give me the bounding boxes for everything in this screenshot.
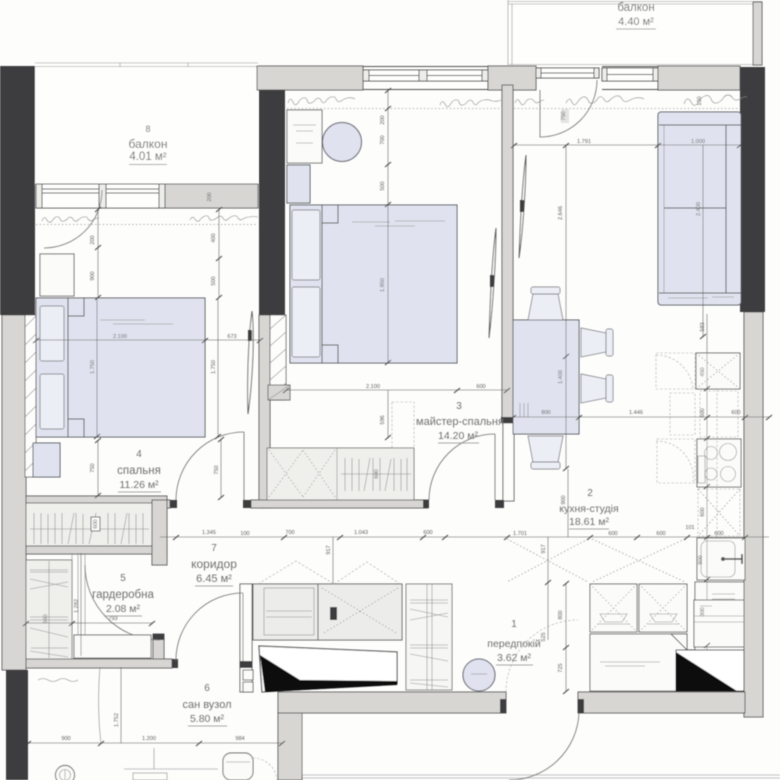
svg-text:кухня-студія: кухня-студія bbox=[559, 503, 618, 515]
svg-text:балкон: балкон bbox=[129, 137, 168, 151]
svg-text:525: 525 bbox=[541, 632, 547, 641]
svg-text:2.646: 2.646 bbox=[558, 206, 564, 220]
svg-text:5: 5 bbox=[120, 573, 126, 584]
svg-text:917: 917 bbox=[326, 545, 332, 554]
svg-text:1.750: 1.750 bbox=[90, 360, 96, 374]
svg-text:4: 4 bbox=[136, 449, 142, 460]
svg-text:6.45 м²: 6.45 м² bbox=[196, 573, 232, 585]
svg-text:793: 793 bbox=[108, 616, 117, 622]
svg-text:750: 750 bbox=[561, 111, 567, 120]
svg-text:2.400: 2.400 bbox=[696, 202, 702, 216]
svg-text:1.043: 1.043 bbox=[354, 530, 368, 536]
svg-text:майстер-спальня: майстер-спальня bbox=[416, 416, 504, 428]
svg-text:700: 700 bbox=[285, 530, 294, 536]
svg-text:600: 600 bbox=[700, 507, 706, 516]
svg-text:583: 583 bbox=[700, 322, 706, 331]
svg-text:4.01 м²: 4.01 м² bbox=[129, 151, 166, 163]
svg-text:600: 600 bbox=[476, 384, 485, 390]
svg-text:600: 600 bbox=[93, 519, 99, 528]
svg-text:750: 750 bbox=[90, 463, 96, 472]
svg-text:900: 900 bbox=[90, 271, 96, 280]
svg-text:800: 800 bbox=[541, 410, 550, 416]
svg-text:1.400: 1.400 bbox=[558, 370, 564, 384]
svg-text:6: 6 bbox=[204, 683, 210, 694]
svg-text:11.26 м²: 11.26 м² bbox=[119, 479, 159, 491]
svg-text:1.950: 1.950 bbox=[380, 278, 386, 292]
svg-text:200: 200 bbox=[207, 192, 213, 201]
svg-text:1.791: 1.791 bbox=[577, 139, 591, 145]
svg-text:600: 600 bbox=[608, 531, 617, 537]
svg-text:400: 400 bbox=[211, 233, 217, 242]
svg-text:2.08 м²: 2.08 м² bbox=[106, 603, 141, 615]
svg-text:2.100: 2.100 bbox=[113, 334, 127, 340]
svg-text:сан вузол: сан вузол bbox=[182, 699, 231, 711]
svg-text:балкон: балкон bbox=[617, 2, 654, 14]
svg-text:1.752: 1.752 bbox=[114, 713, 120, 727]
svg-text:3: 3 bbox=[456, 401, 462, 412]
svg-text:5.80 м²: 5.80 м² bbox=[190, 713, 225, 725]
svg-text:спальня: спальня bbox=[117, 465, 161, 477]
svg-text:750: 750 bbox=[214, 465, 220, 474]
svg-text:гардеробна: гардеробна bbox=[92, 589, 154, 601]
svg-text:4.40 м²: 4.40 м² bbox=[618, 16, 654, 28]
svg-text:200: 200 bbox=[380, 115, 386, 124]
svg-text:18.61 м²: 18.61 м² bbox=[569, 516, 609, 528]
svg-text:600: 600 bbox=[700, 408, 706, 417]
svg-text:560: 560 bbox=[43, 614, 49, 623]
svg-text:101: 101 bbox=[685, 525, 694, 531]
svg-text:1: 1 bbox=[511, 619, 517, 630]
svg-text:1.446: 1.446 bbox=[629, 410, 643, 416]
svg-text:1.750: 1.750 bbox=[211, 360, 217, 374]
svg-text:700: 700 bbox=[380, 135, 386, 144]
svg-text:917: 917 bbox=[541, 544, 547, 553]
svg-text:8: 8 bbox=[145, 124, 150, 134]
svg-text:800: 800 bbox=[698, 555, 704, 564]
svg-text:500: 500 bbox=[211, 276, 217, 285]
svg-text:1.282: 1.282 bbox=[74, 599, 80, 613]
svg-text:725: 725 bbox=[558, 663, 564, 672]
svg-text:800: 800 bbox=[558, 610, 564, 619]
svg-text:673: 673 bbox=[227, 334, 236, 340]
svg-text:100: 100 bbox=[240, 531, 249, 537]
svg-text:3.62 м²: 3.62 м² bbox=[497, 652, 532, 664]
svg-text:7: 7 bbox=[211, 543, 217, 554]
svg-text:600: 600 bbox=[656, 531, 665, 537]
svg-text:500: 500 bbox=[380, 181, 386, 190]
svg-text:600: 600 bbox=[714, 531, 723, 537]
svg-text:2: 2 bbox=[587, 488, 593, 499]
svg-text:150: 150 bbox=[697, 96, 703, 105]
svg-text:2.100: 2.100 bbox=[366, 384, 380, 390]
svg-text:коридор: коридор bbox=[191, 557, 237, 571]
svg-text:600: 600 bbox=[374, 469, 380, 478]
svg-text:1.200: 1.200 bbox=[142, 736, 156, 742]
svg-text:596: 596 bbox=[380, 415, 386, 424]
svg-text:1.000: 1.000 bbox=[691, 139, 705, 145]
svg-text:1.701: 1.701 bbox=[513, 531, 527, 537]
svg-text:1.345: 1.345 bbox=[202, 530, 216, 536]
svg-text:14.20 м²: 14.20 м² bbox=[438, 430, 478, 442]
svg-text:900: 900 bbox=[61, 736, 70, 742]
svg-text:600: 600 bbox=[731, 410, 740, 416]
svg-text:300: 300 bbox=[700, 607, 706, 616]
svg-text:450: 450 bbox=[700, 367, 706, 376]
svg-text:передпокій: передпокій bbox=[487, 638, 541, 650]
svg-text:200: 200 bbox=[90, 235, 96, 244]
svg-text:984: 984 bbox=[235, 736, 244, 742]
svg-text:600: 600 bbox=[423, 530, 432, 536]
